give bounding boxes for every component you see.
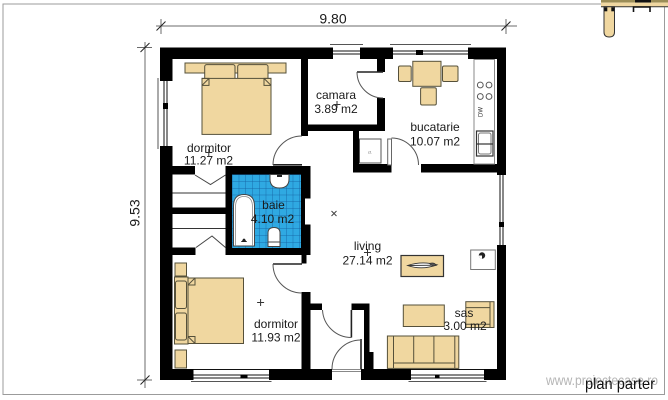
svg-text:9.80: 9.80 [319,11,346,27]
svg-text:dormitor: dormitor [254,317,298,331]
svg-text:sas: sas [455,306,474,320]
svg-text:plan parter: plan parter [585,376,656,393]
svg-text:4.10 m2: 4.10 m2 [251,212,295,226]
svg-text:3.00 m2: 3.00 m2 [443,319,487,333]
svg-text:9.53: 9.53 [127,199,143,226]
svg-text:11.93 m2: 11.93 m2 [251,331,300,345]
svg-text:ct.: ct. [368,150,372,155]
svg-text:camara: camara [316,88,356,102]
svg-text:10.07 m2: 10.07 m2 [410,135,460,149]
svg-text:DW: DW [479,107,485,117]
svg-text:baie: baie [262,198,285,212]
svg-text:bucatarie: bucatarie [410,120,460,134]
